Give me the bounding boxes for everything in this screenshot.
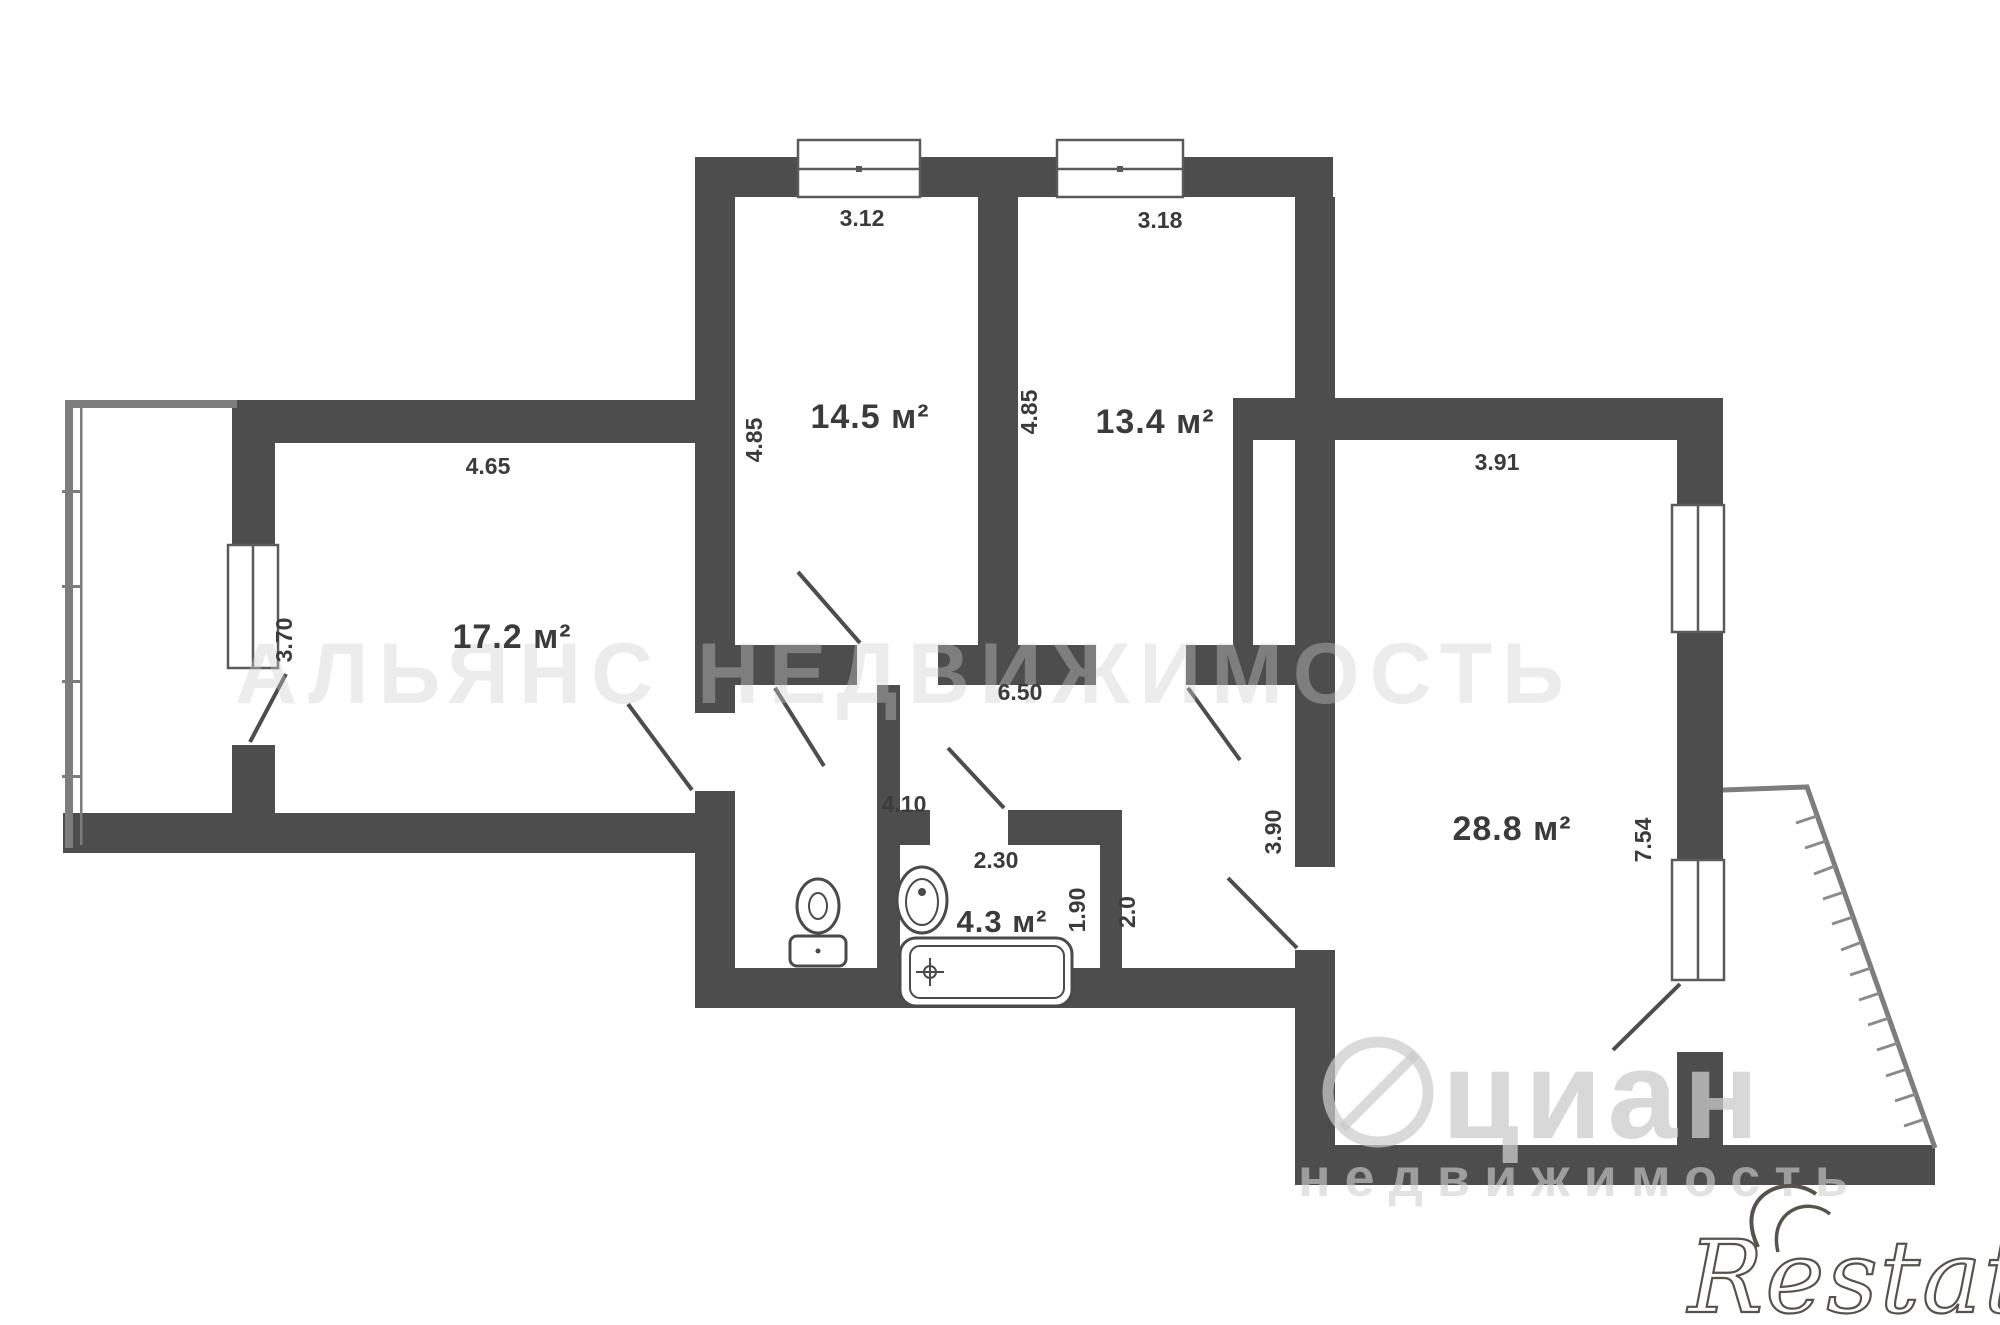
restate-logo-text: Restate [1686,1219,2000,1325]
main-room-width-dim: 3.91 [1475,449,1520,475]
hall-width-dim: 4.10 [882,791,927,817]
bedroom-2-width-dim: 3.18 [1138,207,1183,233]
cian-watermark-subtext: недвижимость [1298,1148,1862,1208]
bathroom-right-dim: 2.0 [1114,896,1140,928]
bathroom-left-dim: 1.90 [1064,888,1090,933]
bedroom-2-area: 13.4 м² [1095,403,1214,441]
cian-watermark-text: циан [1442,1026,1765,1165]
hall-length-dim: 6.50 [998,679,1043,705]
bedroom-2-depth-dim: 4.85 [1016,389,1042,434]
window-bedroom-2 [1057,140,1183,197]
main-room-area: 28.8 м² [1452,810,1571,848]
living-room-window-dim: 3.70 [271,618,297,663]
window-main-room-lower [1672,860,1724,980]
floor-plan-page: АЛЬЯНС НЕДВИЖИМОСТЬ 14.5 м² 3.12 4.85 13… [0,0,2000,1325]
main-room-right-dim: 7.54 [1630,817,1656,862]
agency-watermark: АЛЬЯНС НЕДВИЖИМОСТЬ [235,626,1574,722]
bedroom-1-area: 14.5 м² [810,398,929,436]
sink-icon [897,867,947,933]
bedroom-1-width-dim: 3.12 [840,205,885,231]
bathroom-width-dim: 2.30 [974,847,1019,873]
living-room-area: 17.2 м² [452,618,571,656]
window-main-room-upper [1672,505,1724,632]
window-bedroom-1 [798,140,920,197]
bedroom-1-depth-dim: 4.85 [741,417,767,462]
bathtub-icon [900,938,1072,1006]
balcony-glazing-line [80,408,83,845]
living-room-width-dim: 4.65 [466,453,511,479]
main-room-left-dim: 3.90 [1260,810,1286,855]
floor-plan: АЛЬЯНС НЕДВИЖИМОСТЬ 14.5 м² 3.12 4.85 13… [0,0,2000,1325]
bathroom-area: 4.3 м² [957,904,1048,939]
